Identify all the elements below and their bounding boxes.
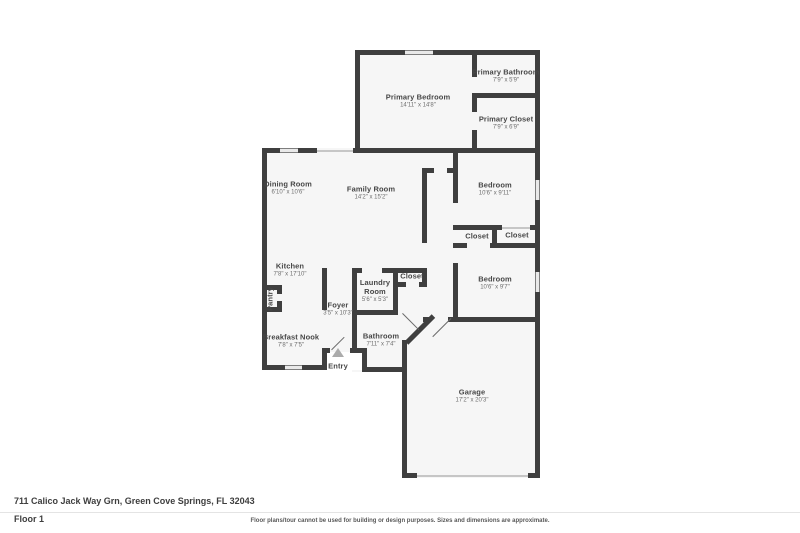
wall-segment [490, 243, 540, 248]
wall-segment [419, 282, 427, 287]
slider-opening [317, 150, 353, 152]
floor-plan: Primary Bedroom 14'11" x 14'8" Primary B… [0, 0, 800, 533]
room-label-primary-bedroom: Primary Bedroom 14'11" x 14'8" [386, 92, 450, 109]
wall-segment [472, 93, 477, 112]
wall-segment [398, 282, 406, 287]
wall-segment [352, 313, 357, 353]
wall-segment [355, 50, 540, 55]
wall-segment [422, 168, 427, 243]
wall-segment [322, 348, 330, 353]
room-label-primary-closet: Primary Closet 7'9" x 6'9" [479, 114, 533, 131]
room-label-family-room: Family Room 14'2" x 15'2" [347, 184, 395, 201]
window [405, 50, 433, 55]
wall-segment [352, 310, 398, 315]
garage-door-opening [417, 475, 528, 477]
wall-segment [528, 473, 540, 478]
room-label-closet-right: Closet [505, 231, 529, 240]
room-label-laundry-room: Laundry Room 5'6" x 5'3" [353, 278, 397, 304]
window [535, 180, 540, 200]
room-label-closet-left: Closet [465, 232, 489, 241]
room-label-hall-closet: Closet [400, 272, 424, 281]
property-address: 711 Calico Jack Way Grn, Green Cove Spri… [14, 496, 255, 506]
wall-segment [262, 365, 285, 370]
window [535, 272, 540, 292]
wall-segment [453, 148, 458, 203]
wall-segment [355, 50, 360, 153]
wall-segment [298, 148, 317, 153]
closet-opening [502, 227, 530, 229]
room-label-bedroom-2: Bedroom 10'6" x 9'7" [478, 274, 512, 291]
wall-segment [453, 263, 458, 317]
wall-segment [277, 301, 282, 312]
wall-segment [448, 317, 540, 322]
room-label-dining-room: Dining Room 6'10" x 10'6" [264, 179, 312, 196]
wall-segment [453, 243, 467, 248]
room-label-pantry: Pantry [266, 287, 275, 311]
room-label-kitchen: Kitchen 7'8" x 17'10" [274, 261, 307, 278]
room-label-breakfast-nook: Breakfast Nook 7'8" x 7'5" [263, 332, 319, 349]
wall-segment [402, 340, 407, 478]
footer-divider [0, 512, 800, 513]
wall-segment [473, 93, 540, 98]
room-label-foyer: Foyer 3'5" x 10'3" [323, 300, 353, 317]
entry-marker-icon [332, 348, 344, 357]
room-label-primary-bathroom: Primary Bathroom 7'9" x 5'9" [472, 67, 539, 84]
wall-segment [277, 285, 282, 294]
window [280, 148, 298, 153]
wall-segment [423, 317, 430, 322]
wall-segment [427, 168, 434, 173]
wall-segment [535, 153, 540, 180]
room-label-bathroom: Bathroom 7'11" x 7'4" [363, 331, 399, 348]
wall-segment [530, 225, 540, 230]
room-label-entry: Entry [328, 362, 348, 371]
disclaimer-text: Floor plans/tour cannot be used for buil… [0, 518, 800, 524]
wall-segment [402, 473, 417, 478]
wall-segment [353, 148, 540, 153]
room-label-garage: Garage 17'2" x 20'3" [456, 387, 489, 404]
wall-segment [535, 50, 540, 153]
window [285, 365, 302, 370]
wall-segment [535, 200, 540, 272]
wall-segment [362, 367, 407, 372]
room-label-bedroom-1: Bedroom 10'6" x 9'11" [478, 180, 512, 197]
